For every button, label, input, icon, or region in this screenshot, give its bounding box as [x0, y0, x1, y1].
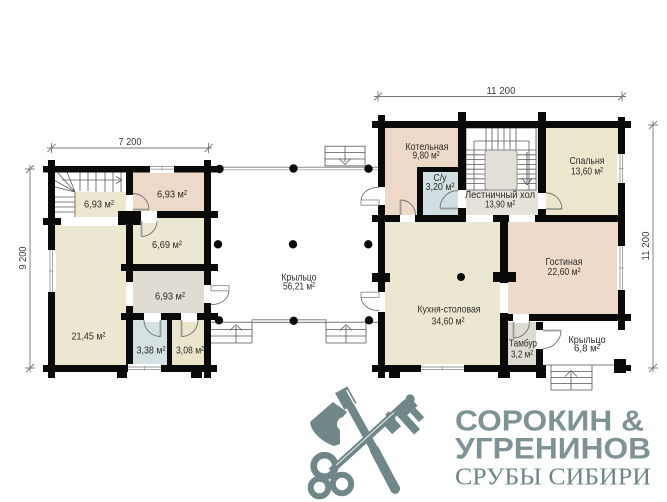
- svg-text:УГРЕНИНОВ: УГРЕНИНОВ: [455, 433, 651, 466]
- svg-text:34,60 м²: 34,60 м²: [432, 316, 465, 328]
- svg-text:6,93 м²: 6,93 м²: [84, 199, 114, 211]
- svg-text:11 200: 11 200: [640, 231, 652, 260]
- svg-text:3,20 м²: 3,20 м²: [426, 181, 455, 193]
- svg-text:7 200: 7 200: [119, 136, 142, 148]
- svg-text:21,45 м²: 21,45 м²: [72, 331, 106, 343]
- svg-text:6,8 м²: 6,8 м²: [574, 343, 600, 355]
- svg-text:3,2 м²: 3,2 м²: [511, 348, 533, 360]
- svg-text:9,80 м²: 9,80 м²: [413, 149, 440, 161]
- svg-text:13,60 м²: 13,60 м²: [571, 166, 603, 178]
- svg-text:3,38 м²: 3,38 м²: [137, 345, 166, 357]
- svg-text:9 200: 9 200: [17, 246, 29, 269]
- svg-text:6,69 м²: 6,69 м²: [152, 239, 182, 251]
- svg-text:6,93 м²: 6,93 м²: [155, 291, 185, 303]
- svg-text:Кухня-столовая: Кухня-столовая: [418, 304, 481, 316]
- svg-text:22,60 м²: 22,60 м²: [548, 266, 581, 278]
- svg-text:56,21 м²: 56,21 м²: [283, 281, 315, 293]
- svg-text:СРУБЫ СИБИРИ: СРУБЫ СИБИРИ: [455, 465, 651, 491]
- svg-text:3,08 м²: 3,08 м²: [176, 345, 204, 357]
- svg-text:11 200: 11 200: [487, 85, 516, 97]
- svg-text:13,90 м²: 13,90 м²: [485, 199, 515, 211]
- svg-text:6,93 м²: 6,93 м²: [157, 189, 187, 201]
